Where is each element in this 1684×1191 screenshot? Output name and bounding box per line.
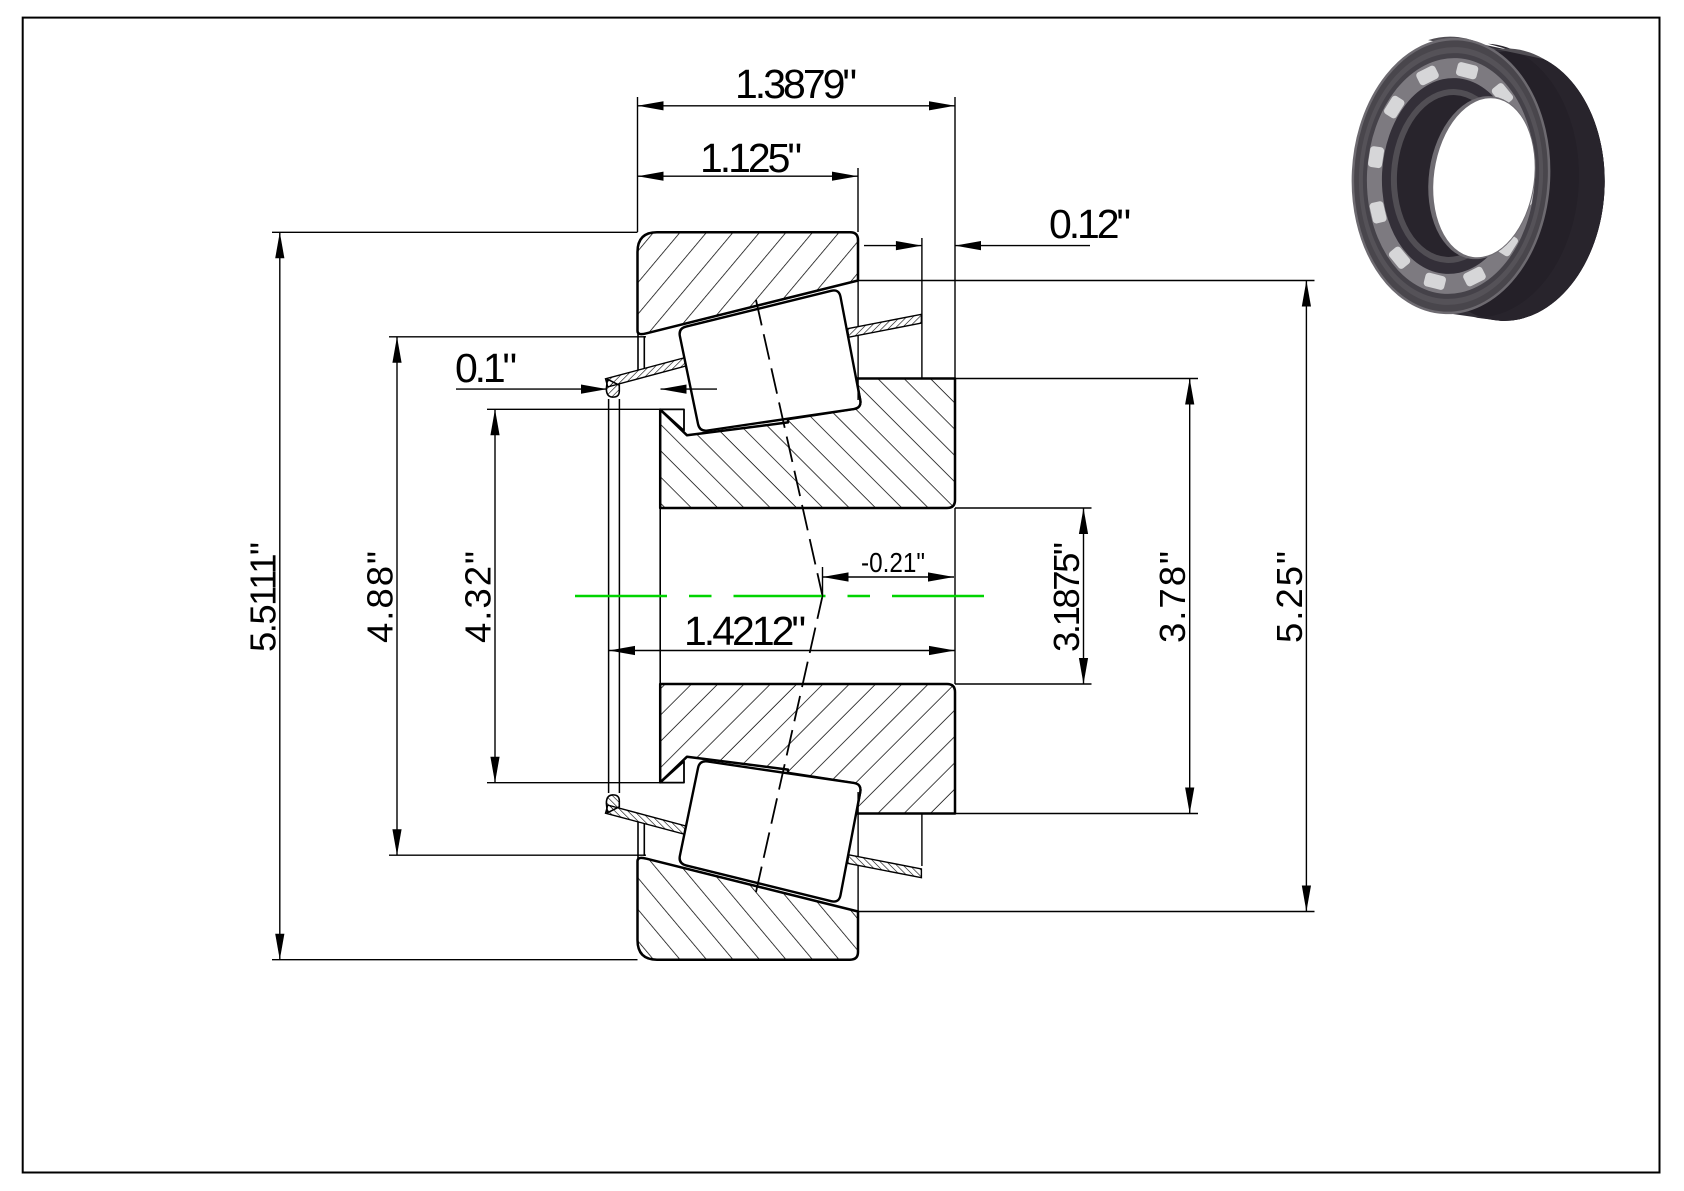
- svg-text:1.125": 1.125": [700, 135, 802, 181]
- svg-text:4.32": 4.32": [458, 551, 499, 643]
- svg-text:5.25": 5.25": [1269, 551, 1310, 643]
- svg-text:-0.21": -0.21": [861, 547, 925, 578]
- svg-text:3.1875": 3.1875": [1046, 542, 1087, 652]
- svg-text:1.4212": 1.4212": [684, 608, 806, 654]
- svg-text:5.5111": 5.5111": [242, 542, 283, 652]
- svg-text:4.88": 4.88": [360, 551, 401, 643]
- svg-text:0.1": 0.1": [455, 345, 517, 391]
- svg-text:0.12": 0.12": [1049, 201, 1131, 247]
- svg-text:1.3879": 1.3879": [735, 61, 857, 107]
- svg-text:3.78": 3.78": [1152, 551, 1193, 643]
